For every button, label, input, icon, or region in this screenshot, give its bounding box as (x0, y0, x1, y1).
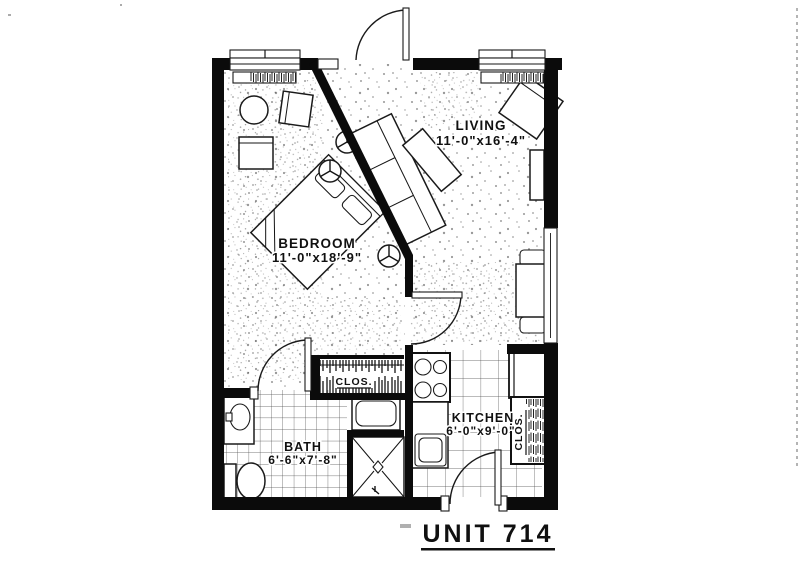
vanity-sink (224, 395, 254, 444)
stove (412, 353, 450, 402)
bedroom-chair-a (279, 91, 313, 127)
unit-title: UNIT 714 (421, 520, 555, 551)
floor-plan-drawing: LIVING 11'-0"x16'-4" BEDROOM 11'-0"x18'-… (0, 0, 800, 568)
shower (352, 437, 404, 497)
bath-label: BATH (284, 440, 322, 454)
hall-closet-label: CLOS. (334, 372, 374, 388)
svg-text:CLOS.: CLOS. (513, 413, 525, 450)
bedroom-label: BEDROOM (278, 236, 356, 251)
svg-text:CLOS.: CLOS. (335, 376, 372, 388)
living-dims: 11'-0"x16'-4" (436, 133, 526, 148)
dining-table (516, 250, 546, 333)
living-label: LIVING (455, 118, 506, 133)
radiator-icon (233, 72, 296, 83)
entry-door (318, 8, 409, 69)
refrigerator (509, 353, 545, 398)
kitchen-label: KITCHEN (452, 411, 515, 425)
bath-dims: 6'-6"x7'-8" (268, 453, 337, 467)
round-table (240, 96, 268, 124)
radiator-icon (481, 72, 544, 83)
window-top-right (479, 50, 545, 83)
kitchen-sink (415, 434, 446, 466)
window-top-left (230, 50, 300, 83)
bedroom-dims: 11'-0"x18'-9" (272, 250, 362, 265)
pantry-closet-label: CLOS. (513, 410, 526, 455)
kitchen-dims: 6'-0"x9'-0" (446, 424, 515, 438)
window-right-wall (544, 228, 557, 343)
bedroom-chair-b (239, 137, 273, 169)
wall-cabinet (530, 150, 544, 200)
linen-cabinet (352, 397, 400, 430)
unit-title-text: UNIT 714 (423, 520, 554, 548)
toilet (224, 463, 265, 499)
floor-plan-page: LIVING 11'-0"x16'-4" BEDROOM 11'-0"x18'-… (0, 0, 800, 568)
